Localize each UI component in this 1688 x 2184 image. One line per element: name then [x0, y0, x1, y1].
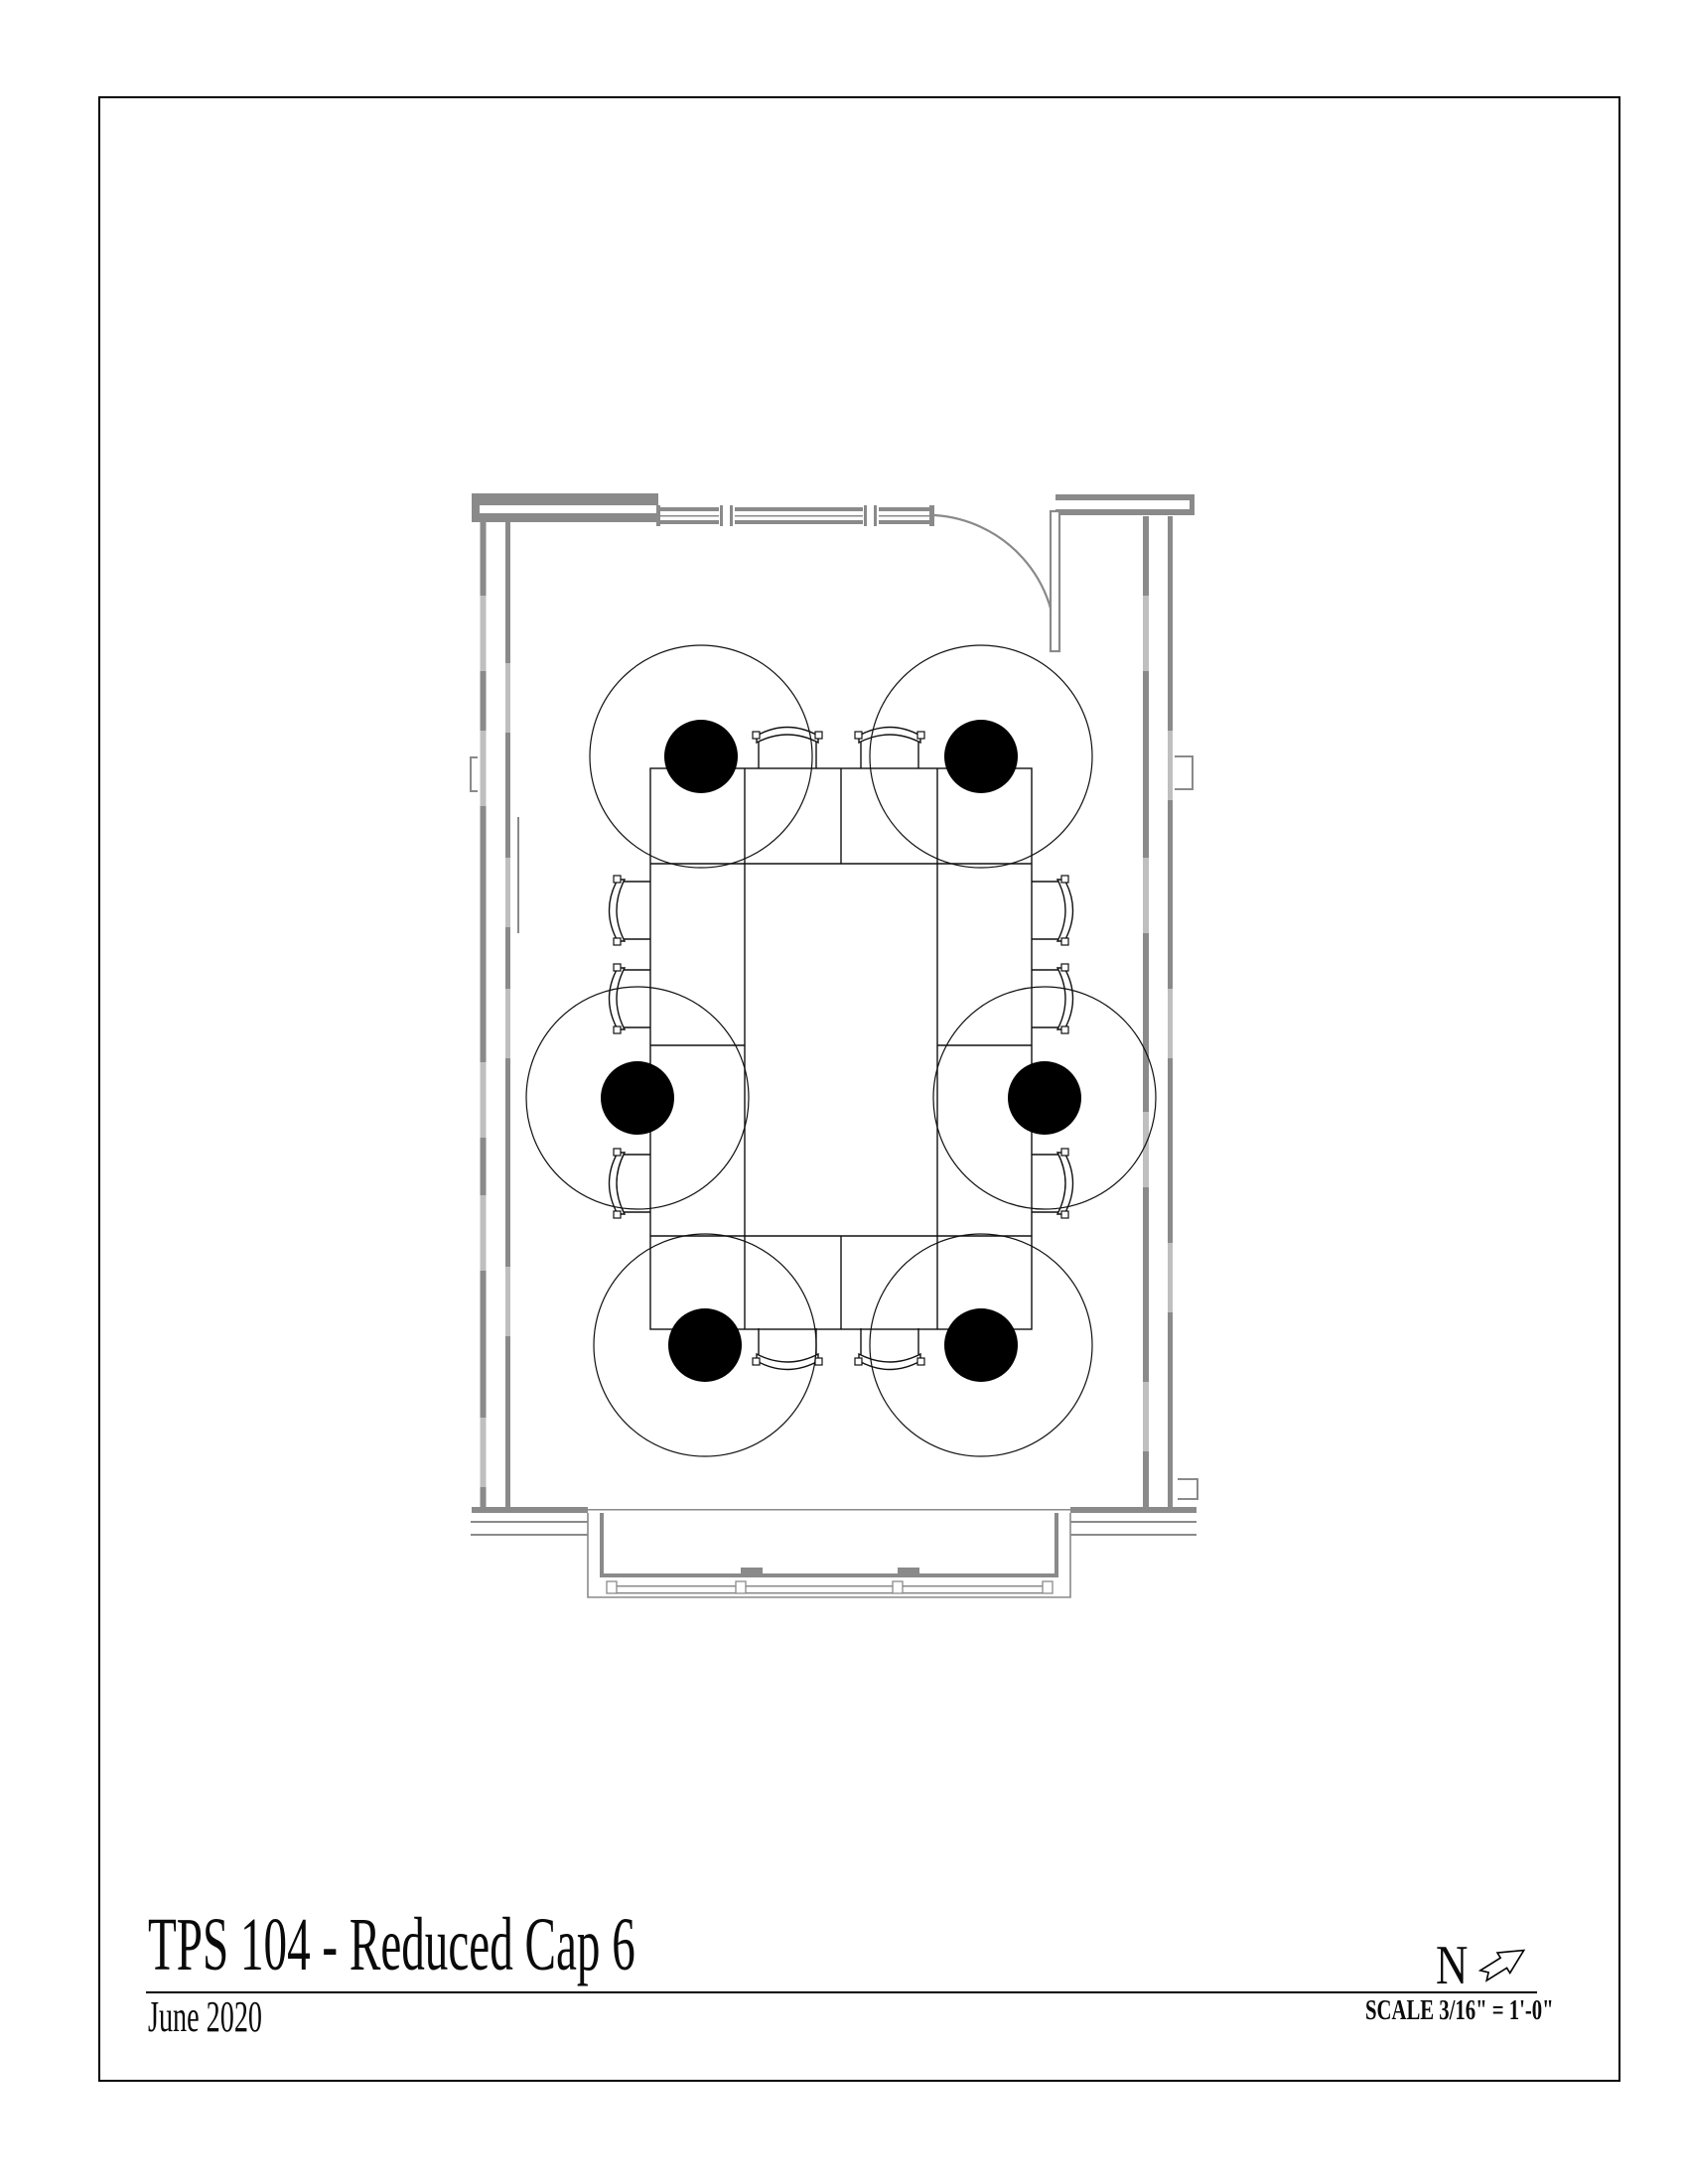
- top-right-wall-pier: [1055, 494, 1195, 515]
- seat-dot: [601, 1061, 674, 1135]
- chair-symbol: [855, 1328, 924, 1370]
- door-leaf: [1051, 511, 1059, 651]
- south-wall: [471, 1507, 1196, 1536]
- seat-dot: [944, 1308, 1018, 1382]
- north-arrow-icon: [1477, 1940, 1530, 1985]
- left-wall-recess: [471, 757, 478, 791]
- top-window-band: [656, 505, 934, 526]
- table-group: [650, 768, 1032, 1329]
- seat-dot: [944, 720, 1018, 793]
- window-mullion: [1043, 1581, 1053, 1593]
- chair-symbol: [1032, 1149, 1073, 1218]
- door-swing-arc: [934, 515, 1055, 650]
- scale-label: SCALE 3/16" = 1'-0": [1365, 1997, 1554, 2025]
- bay-window: [588, 1513, 1070, 1597]
- window-mullion: [893, 1581, 903, 1593]
- chair-symbol: [610, 1149, 651, 1218]
- right-wall-recess-lower: [1178, 1479, 1197, 1499]
- chair-symbol: [1032, 964, 1073, 1033]
- left-wall-trim: [517, 817, 519, 933]
- seat-dot: [664, 720, 738, 793]
- window-mullion: [736, 1581, 746, 1593]
- chair-symbol: [610, 964, 651, 1033]
- floor-plan: [0, 0, 1688, 2184]
- sheet-date: June 2020: [148, 1995, 262, 2039]
- chair-symbol: [753, 1328, 822, 1370]
- north-label: N: [1436, 1938, 1468, 1993]
- sheet-title: TPS 104 - Reduced Cap 6: [148, 1907, 635, 1982]
- seat-dot: [1008, 1061, 1081, 1135]
- chair-symbol: [610, 876, 651, 945]
- chair-symbol: [855, 728, 924, 769]
- window-mullion: [607, 1581, 617, 1593]
- right-wall-recess-upper: [1175, 756, 1193, 789]
- title-rule: [146, 1991, 1537, 1993]
- seat-dot: [668, 1308, 742, 1382]
- entry-door: [934, 511, 1059, 651]
- left-wall: [471, 522, 519, 1510]
- top-left-wall-pier: [472, 493, 660, 522]
- sheet-background: TPS 104 - Reduced Cap 6 June 2020 N SCAL…: [0, 0, 1688, 2184]
- chair-symbol: [1032, 876, 1073, 945]
